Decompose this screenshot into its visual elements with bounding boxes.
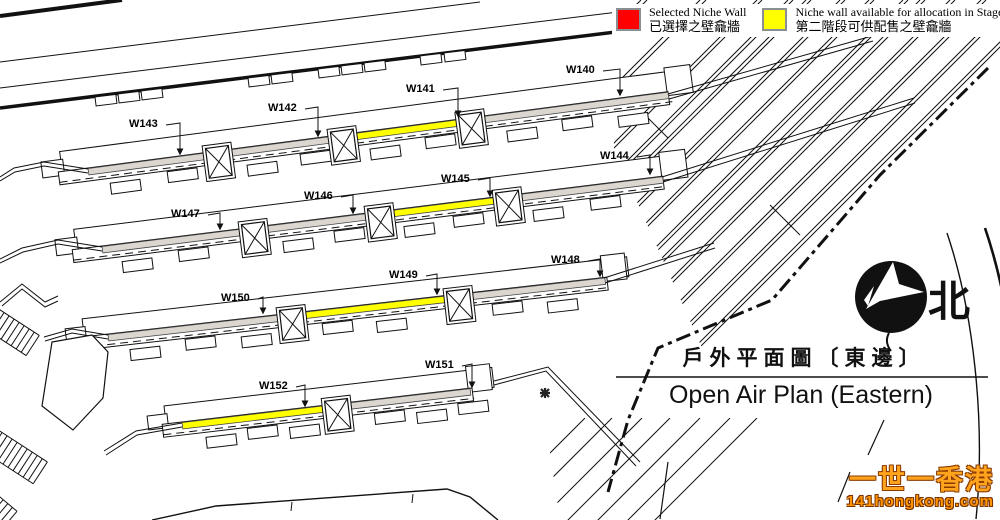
wall-label-w143: W143 xyxy=(129,118,158,130)
wall-label-w141: W141 xyxy=(406,83,435,95)
wall-label-w140: W140 xyxy=(566,64,595,76)
legend-item-selected: Selected Niche Wall 已選擇之壁龕牆 xyxy=(616,6,746,35)
stairs-lower xyxy=(0,426,47,484)
small-building xyxy=(42,335,108,430)
selected-color-swatch xyxy=(616,8,641,31)
wall-label-w148: W148 xyxy=(551,254,580,266)
watermark-site-url: 141hongkong.com xyxy=(846,494,994,509)
wall-label-w142: W142 xyxy=(268,102,297,114)
pinwheel-ornament xyxy=(540,388,550,398)
legend-selected-en: Selected Niche Wall xyxy=(649,6,746,20)
wall-row-4 xyxy=(146,364,498,455)
legend-item-stage2: Niche wall available for allocation in S… xyxy=(762,6,1000,35)
stairs-upper xyxy=(0,306,39,356)
watermark: 一世一香港 141hongkong.com xyxy=(846,467,994,509)
column-boxes xyxy=(321,395,354,434)
legend-stage2-zh: 第二階段可供配售之壁龕牆 xyxy=(795,20,1000,35)
wall-label-w146: W146 xyxy=(304,190,333,202)
wall-row-3 xyxy=(64,253,632,368)
wall-label-w144: W144 xyxy=(600,150,629,162)
open-air-plan-page: Selected Niche Wall 已選擇之壁龕牆 Niche wall a… xyxy=(0,0,1000,520)
plan-title-en: Open Air Plan (Eastern) xyxy=(613,381,989,410)
right-road-bundle-lower xyxy=(475,418,757,520)
stairs-corner xyxy=(0,492,17,520)
left-zigzag-path xyxy=(0,284,58,307)
legend-selected-zh: 已選擇之壁龕牆 xyxy=(649,20,746,35)
watermark-site-name: 一世一香港 xyxy=(846,467,994,494)
north-label: 北 xyxy=(928,268,970,329)
wall-label-w150: W150 xyxy=(221,292,250,304)
wall-label-w149: W149 xyxy=(389,269,418,281)
legend-stage2-en: Niche wall available for allocation in S… xyxy=(795,6,1000,20)
site-plan-drawing xyxy=(0,0,1000,520)
legend: Selected Niche Wall 已選擇之壁龕牆 Niche wall a… xyxy=(612,4,1000,37)
wall-label-w145: W145 xyxy=(441,173,470,185)
north-arrow-icon xyxy=(855,261,927,351)
stage2-color-swatch xyxy=(762,8,787,31)
wall-label-w152: W152 xyxy=(259,380,288,392)
bottom-building xyxy=(152,489,498,520)
plan-title-zh: 戶外平面圖〔東邊〕 xyxy=(636,342,972,372)
wall-label-w147: W147 xyxy=(171,208,200,220)
wall-label-w151: W151 xyxy=(425,359,454,371)
